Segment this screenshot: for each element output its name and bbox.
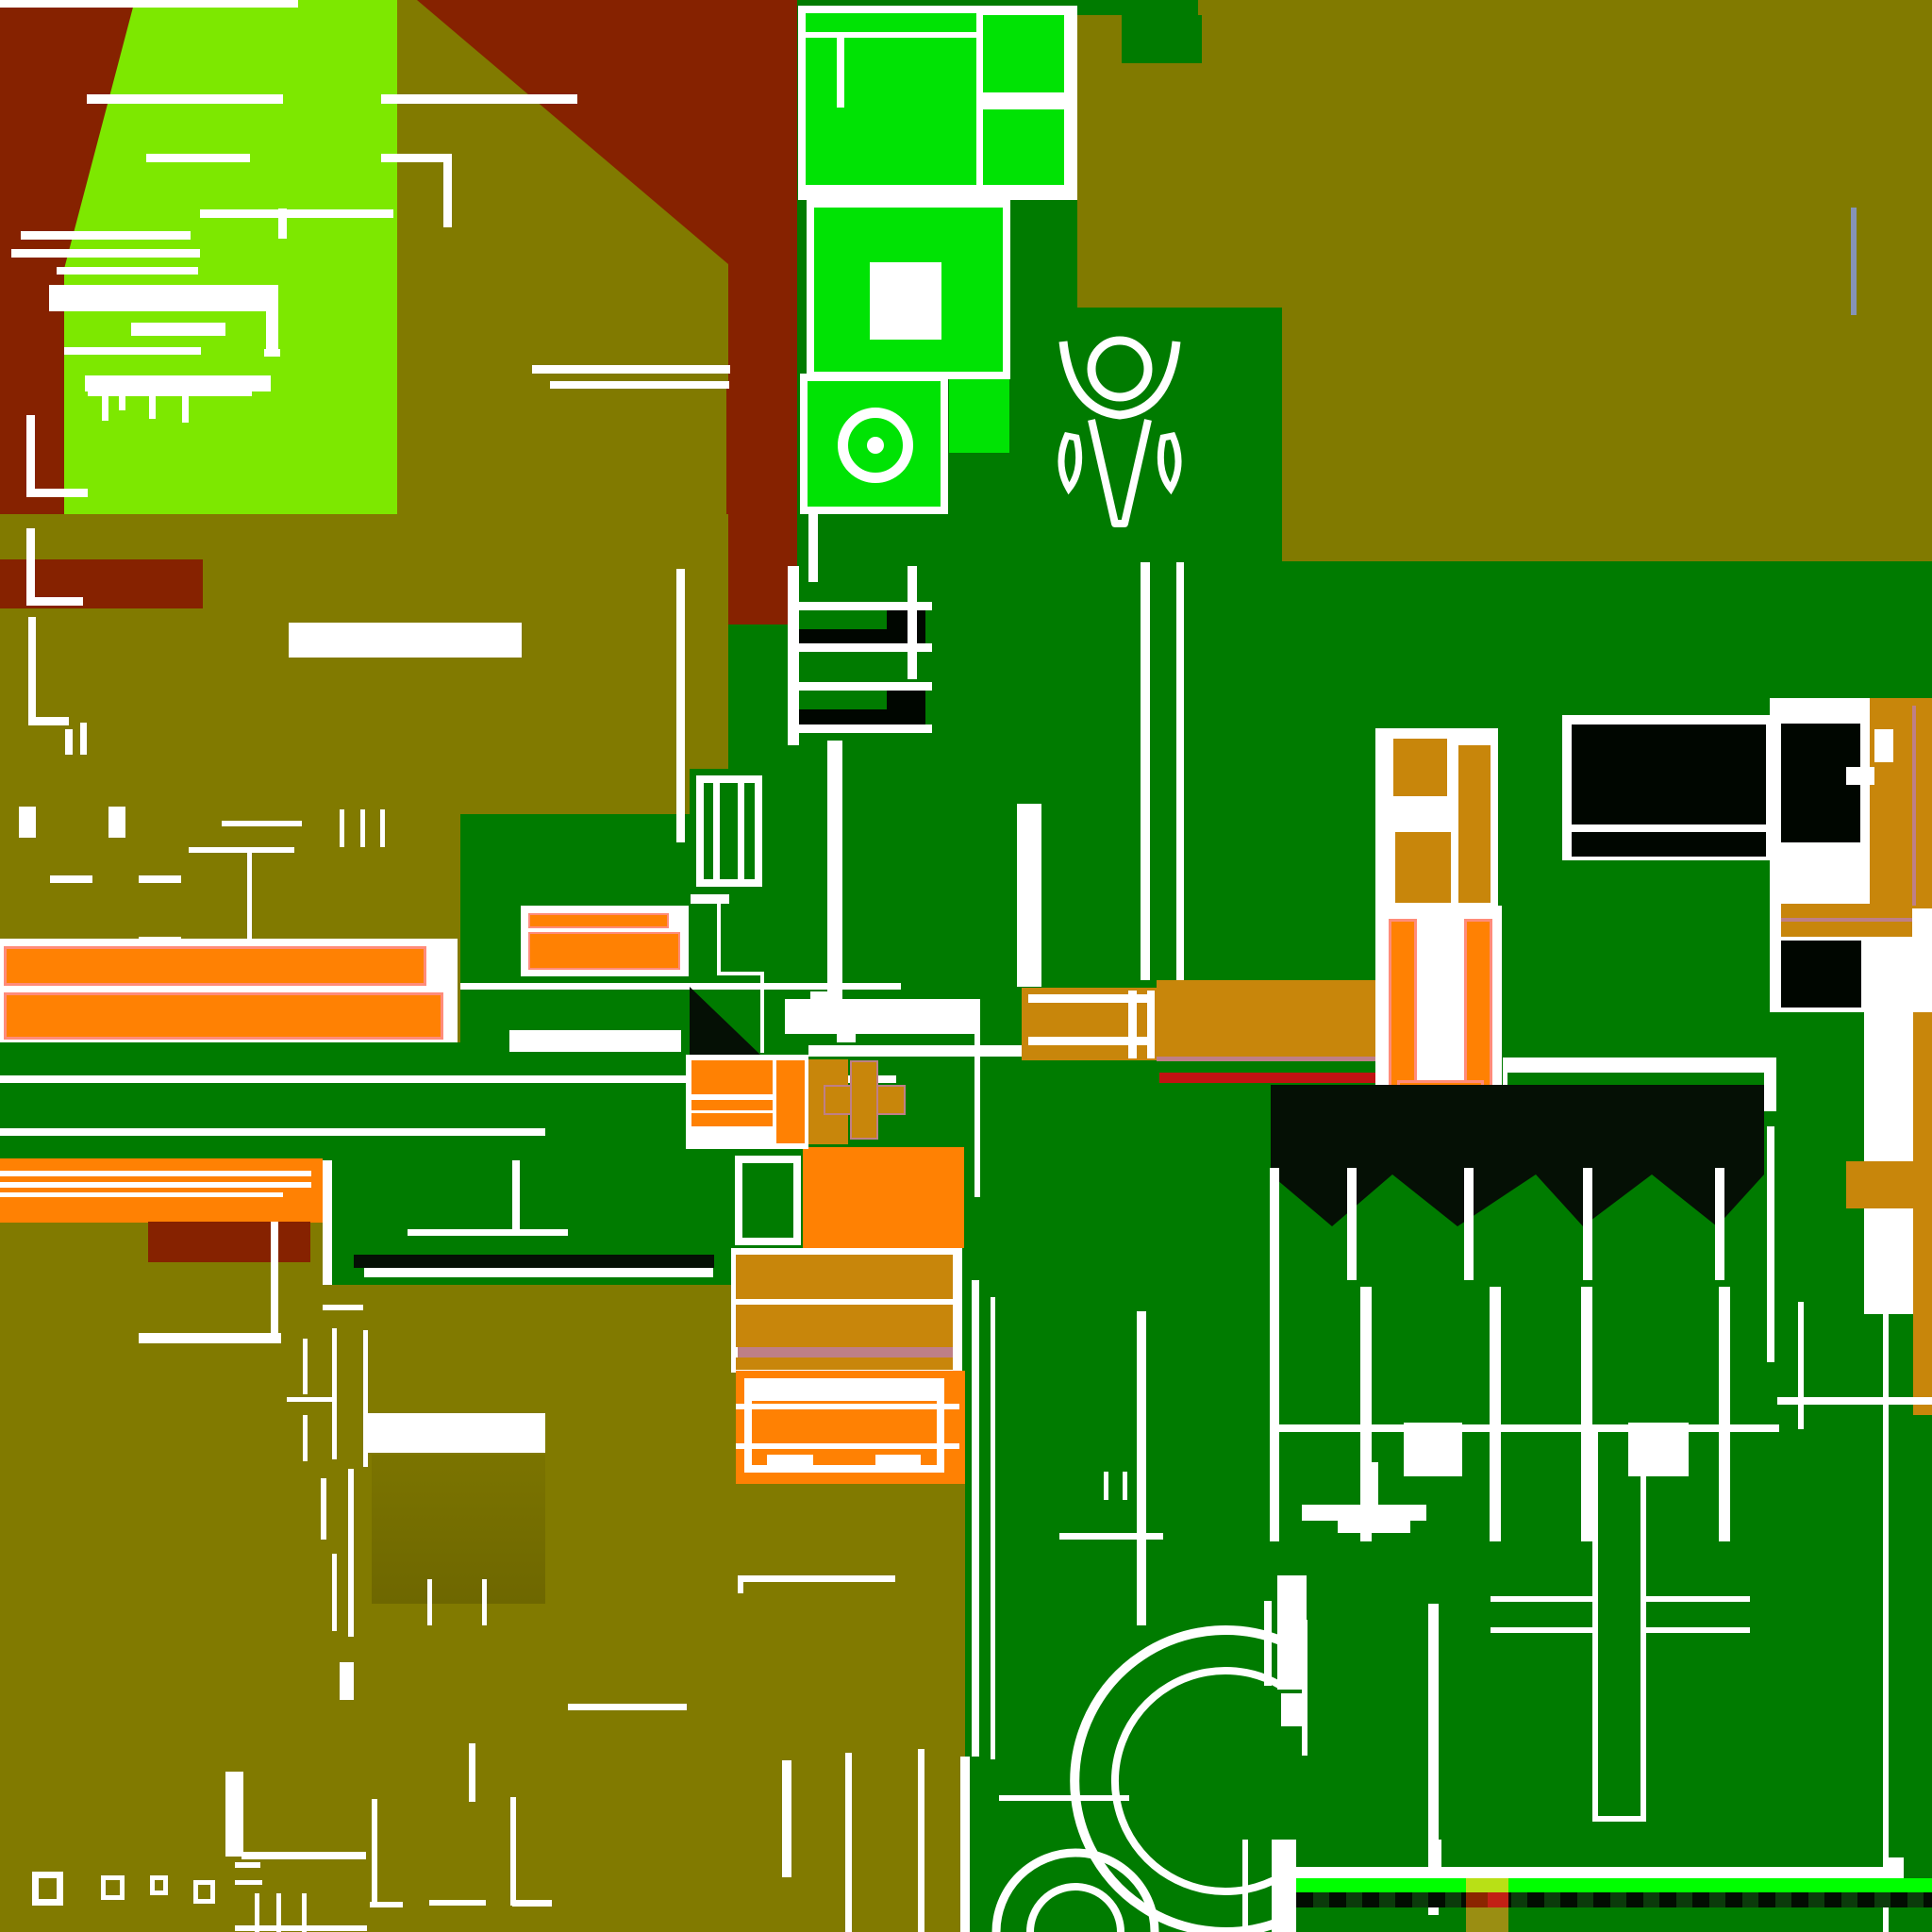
window-glass bbox=[704, 783, 755, 879]
olive-hline bbox=[738, 1575, 895, 1582]
goldbar-3 bbox=[736, 1357, 955, 1370]
tl-med-bar bbox=[131, 323, 225, 336]
tent-v1 bbox=[1347, 1168, 1357, 1280]
panelD-sb2 bbox=[875, 1455, 921, 1466]
figure-icon-part bbox=[1160, 436, 1178, 489]
figure-icon bbox=[1038, 321, 1198, 538]
boundary-v3 bbox=[960, 1757, 970, 1932]
tl-line-7 bbox=[11, 249, 200, 258]
greenframe-inner bbox=[742, 1163, 793, 1238]
edge-tick-a bbox=[65, 729, 73, 755]
cross-h2l bbox=[1491, 1627, 1592, 1633]
ml-tick-1 bbox=[427, 1579, 432, 1625]
goldbars-vline bbox=[953, 1250, 961, 1373]
abstract-canvas bbox=[0, 0, 1932, 1932]
cross-h1r bbox=[1646, 1596, 1750, 1602]
bl-angle-1h bbox=[370, 1902, 403, 1907]
edge-bracket-1v bbox=[26, 415, 35, 495]
goldpanel-3 bbox=[1395, 832, 1451, 903]
bl-angle-1v bbox=[372, 1799, 377, 1907]
gold-rbar-2 bbox=[1781, 922, 1912, 937]
gradient-block bbox=[372, 1455, 545, 1604]
tl-line-6 bbox=[21, 231, 191, 240]
tiny-sq bbox=[264, 349, 280, 357]
opanel-bar1 bbox=[691, 1060, 773, 1094]
panelD-sb1 bbox=[767, 1455, 813, 1466]
tr-green-notch2 bbox=[1122, 15, 1202, 63]
orange-barB2 bbox=[528, 932, 680, 970]
goldbar-pink bbox=[1157, 1057, 1380, 1061]
puce-strip bbox=[738, 1347, 955, 1357]
stub-v2 bbox=[1123, 1472, 1127, 1500]
goldbar-main bbox=[1157, 980, 1380, 1061]
band-bar-2 bbox=[88, 390, 252, 396]
olive-sq-2 bbox=[108, 807, 125, 838]
orange-barA2 bbox=[4, 992, 443, 1040]
maroon-patch bbox=[148, 1222, 310, 1262]
olive-tick-1 bbox=[340, 809, 344, 847]
c-vline-top bbox=[1137, 1311, 1146, 1625]
white-band-mid bbox=[368, 1413, 545, 1453]
ml-hsmall bbox=[323, 1305, 363, 1310]
cross-v2 bbox=[1641, 1432, 1646, 1821]
ml-v5 bbox=[321, 1478, 326, 1540]
tl-thick-bar bbox=[49, 285, 278, 311]
ml-v3 bbox=[332, 1328, 337, 1459]
cross-h1l bbox=[1491, 1596, 1592, 1602]
tr-line-2 bbox=[550, 381, 729, 389]
fence-v0 bbox=[1270, 1168, 1279, 1541]
white-thick-band bbox=[509, 1030, 681, 1052]
bl-tick-4 bbox=[469, 1743, 475, 1802]
slate-line bbox=[1851, 208, 1857, 315]
tents-black bbox=[1271, 1085, 1764, 1226]
tl-line-3 bbox=[146, 154, 250, 162]
olive-mid-strip bbox=[690, 1279, 736, 1932]
olive-hline-notch bbox=[738, 1582, 743, 1593]
panel3-tail bbox=[808, 512, 818, 582]
window-mullion-1 bbox=[713, 783, 720, 879]
tl-line-5 bbox=[200, 209, 393, 218]
bl-angle-2v bbox=[510, 1797, 516, 1906]
green-ext-v2 bbox=[512, 1160, 520, 1236]
white-bar-mid bbox=[289, 623, 522, 658]
band-tick-1 bbox=[102, 396, 108, 421]
ushape-arm2 bbox=[1464, 919, 1492, 1090]
olive-hline2 bbox=[568, 1704, 687, 1710]
blackbox-3 bbox=[1781, 941, 1861, 1008]
panel1-sq1 bbox=[983, 15, 1064, 92]
fence-v3 bbox=[1581, 1287, 1592, 1541]
orange-bigblock bbox=[803, 1147, 964, 1248]
edge-tick-b bbox=[80, 723, 87, 755]
olive-mark-1 bbox=[222, 821, 302, 826]
blackpanel-div bbox=[1572, 824, 1766, 832]
plus-v bbox=[850, 1060, 878, 1140]
tent-v5 bbox=[1767, 1126, 1774, 1362]
gold-col-pink bbox=[1912, 706, 1916, 906]
br-step bbox=[1338, 1521, 1410, 1533]
br-hbar bbox=[1302, 1505, 1426, 1521]
black-strip-left bbox=[354, 1255, 714, 1268]
olive-v2 bbox=[845, 1753, 852, 1932]
arch-icon-part bbox=[1030, 1887, 1121, 1932]
edge-bracket-3v bbox=[28, 617, 36, 723]
ml-v1 bbox=[303, 1339, 308, 1394]
olive-v1 bbox=[782, 1760, 791, 1877]
ml-tick-2 bbox=[482, 1579, 487, 1625]
c-vline-2 bbox=[1798, 1302, 1804, 1429]
gold-col-notch bbox=[1874, 729, 1893, 762]
figure-icon-part bbox=[1061, 436, 1079, 489]
tl-line-8 bbox=[57, 267, 198, 275]
bl-bar-2 bbox=[235, 1880, 262, 1885]
panel1-main bbox=[806, 38, 976, 185]
bl-dash bbox=[429, 1900, 486, 1906]
bl-L-v bbox=[225, 1772, 243, 1857]
strip-olive-cell bbox=[1466, 1907, 1508, 1932]
olive-sq-1 bbox=[19, 807, 36, 838]
olive-v3 bbox=[918, 1749, 924, 1932]
green-ext-h bbox=[408, 1229, 568, 1236]
br-tick bbox=[1370, 1462, 1378, 1510]
strip2-band bbox=[799, 709, 925, 724]
tower-hbar bbox=[785, 999, 975, 1034]
tower-vline bbox=[827, 741, 842, 1001]
boundary-v1 bbox=[972, 1280, 979, 1757]
patch-hbar bbox=[139, 1333, 281, 1343]
olive-tick-2 bbox=[360, 809, 365, 847]
opanel-bar3 bbox=[691, 1113, 773, 1126]
target-dot bbox=[867, 437, 884, 454]
br-hline bbox=[1270, 1424, 1779, 1432]
goldbar-left-v2 bbox=[1147, 991, 1155, 1058]
poly-v2 bbox=[760, 972, 764, 1053]
vline-a bbox=[676, 569, 685, 842]
strip1-blacksq bbox=[887, 610, 925, 629]
edge-bracket-2v bbox=[26, 528, 35, 604]
vline-e bbox=[1176, 562, 1184, 980]
tl-line-4v bbox=[443, 154, 452, 227]
panel1-vline bbox=[837, 38, 844, 108]
panel2-whitesq bbox=[870, 262, 941, 340]
panel1-sq2 bbox=[983, 109, 1064, 185]
goldbar-left-v1 bbox=[1128, 991, 1137, 1058]
olive-mark-2 bbox=[189, 847, 294, 853]
panelD-hline1 bbox=[736, 1404, 959, 1409]
ml-v4 bbox=[363, 1330, 368, 1467]
poly-v1 bbox=[717, 904, 721, 975]
goldbar-1 bbox=[736, 1255, 954, 1299]
strip2-bot bbox=[795, 724, 932, 733]
tl-bracket-v bbox=[266, 300, 278, 352]
figure-icon-part bbox=[1091, 420, 1148, 524]
opanel-col bbox=[776, 1060, 805, 1143]
band-tick-3 bbox=[149, 396, 156, 419]
goldpanel-2 bbox=[1458, 745, 1491, 903]
olive-tick-3 bbox=[380, 809, 385, 847]
blackpanel-strip bbox=[1572, 832, 1766, 857]
strip2-blacksq bbox=[887, 691, 925, 709]
cross-cap bbox=[1592, 1816, 1646, 1822]
right-vline-long bbox=[1883, 1311, 1889, 1932]
strip1-band bbox=[799, 629, 925, 644]
panelC-stripe3 bbox=[0, 1192, 283, 1197]
plus-white-band bbox=[808, 1045, 1057, 1057]
bl-sq-3 bbox=[150, 1875, 168, 1895]
vline-d bbox=[1141, 562, 1150, 980]
bl-sq-2 bbox=[101, 1875, 125, 1900]
goldpanel-1 bbox=[1393, 739, 1447, 796]
panelD-topbar bbox=[752, 1384, 937, 1401]
strip2-top bbox=[795, 682, 932, 691]
tower-notch bbox=[810, 991, 827, 999]
ml-v2 bbox=[303, 1415, 308, 1461]
blackbox-2-notch bbox=[1846, 767, 1874, 785]
white-strip-left bbox=[364, 1268, 713, 1277]
panelC-orange bbox=[0, 1158, 323, 1223]
vcol-f bbox=[1017, 804, 1041, 987]
cross-h2r bbox=[1646, 1627, 1750, 1633]
patch-vline bbox=[271, 1222, 278, 1337]
band-tick-2 bbox=[119, 396, 125, 410]
bl-angle-2h bbox=[512, 1900, 552, 1907]
strip-yg-cell bbox=[1466, 1878, 1508, 1892]
poly-h bbox=[717, 972, 764, 975]
edge-bracket-3h bbox=[28, 717, 69, 725]
ml-h1 bbox=[287, 1397, 336, 1402]
boundary-v2 bbox=[991, 1297, 995, 1759]
gold-rbar-1 bbox=[1781, 904, 1912, 918]
olive-dash-1 bbox=[50, 875, 92, 883]
green-ext-v1 bbox=[323, 1160, 332, 1285]
maroon-column bbox=[726, 385, 797, 625]
edge-bracket-2h bbox=[26, 597, 83, 606]
tr-line-1 bbox=[532, 365, 730, 374]
tl-line-4 bbox=[381, 154, 452, 162]
bl-bar-1 bbox=[235, 1862, 260, 1868]
ushape-arm1 bbox=[1389, 919, 1417, 1090]
figure-icon-part bbox=[1091, 341, 1148, 397]
tent-v4 bbox=[1715, 1168, 1724, 1280]
strip-red-cell bbox=[1488, 1892, 1508, 1907]
olive-dash-2 bbox=[139, 875, 181, 883]
tl-line-9 bbox=[64, 347, 201, 355]
ml-wrect bbox=[340, 1662, 354, 1700]
red-bar bbox=[1159, 1073, 1376, 1083]
tr-green-notch1 bbox=[1077, 0, 1198, 15]
tl-line-1 bbox=[87, 94, 283, 104]
gold-notch-right bbox=[1846, 1161, 1932, 1208]
stub-v1 bbox=[1104, 1472, 1108, 1500]
arch-icon-part bbox=[996, 1853, 1155, 1932]
fence-v2 bbox=[1490, 1287, 1501, 1541]
band-tick-4 bbox=[182, 396, 189, 423]
green-hline bbox=[1059, 1533, 1163, 1540]
tower-tab bbox=[837, 1034, 856, 1042]
olive-mark-3 bbox=[247, 849, 252, 953]
figure-icon-part bbox=[1063, 341, 1176, 415]
bl-sq-4 bbox=[193, 1880, 215, 1904]
tent-v2 bbox=[1464, 1168, 1474, 1280]
edge-bracket-1h bbox=[26, 489, 88, 497]
ml-v6 bbox=[332, 1554, 337, 1631]
tl-line-2 bbox=[381, 94, 577, 104]
panelC-stripe1 bbox=[0, 1171, 311, 1176]
orange-barB1 bbox=[528, 913, 669, 928]
blackpanel-main bbox=[1572, 724, 1766, 824]
panelD-hline2 bbox=[736, 1443, 959, 1449]
panel1-topbar bbox=[806, 13, 976, 32]
ml-v7 bbox=[348, 1469, 354, 1637]
bl-base bbox=[235, 1925, 367, 1931]
white-top-strip bbox=[0, 0, 298, 8]
tent-v3 bbox=[1583, 1168, 1592, 1280]
cross-v1 bbox=[1592, 1432, 1598, 1821]
panelC-stripe2 bbox=[0, 1182, 311, 1188]
fence-v4 bbox=[1719, 1287, 1730, 1541]
bl-sq-1 bbox=[32, 1872, 63, 1906]
strip-brown-cell bbox=[1466, 1892, 1488, 1907]
window-sill bbox=[691, 894, 729, 904]
stripe-line-2 bbox=[0, 1128, 545, 1136]
vline-b bbox=[788, 566, 799, 745]
window-mullion-2 bbox=[738, 783, 744, 879]
opanel-bar2 bbox=[691, 1100, 773, 1110]
vline-c bbox=[908, 566, 917, 679]
strip-gap bbox=[1433, 1840, 1441, 1867]
bl-L-h bbox=[241, 1852, 366, 1859]
goldbar-2 bbox=[736, 1305, 954, 1347]
gold-col-right2 bbox=[1913, 1012, 1932, 1415]
panel2-step bbox=[949, 379, 1009, 453]
tl-line-5v bbox=[278, 208, 287, 239]
arch-icon bbox=[989, 1844, 1162, 1932]
orange-barA1 bbox=[4, 946, 426, 986]
